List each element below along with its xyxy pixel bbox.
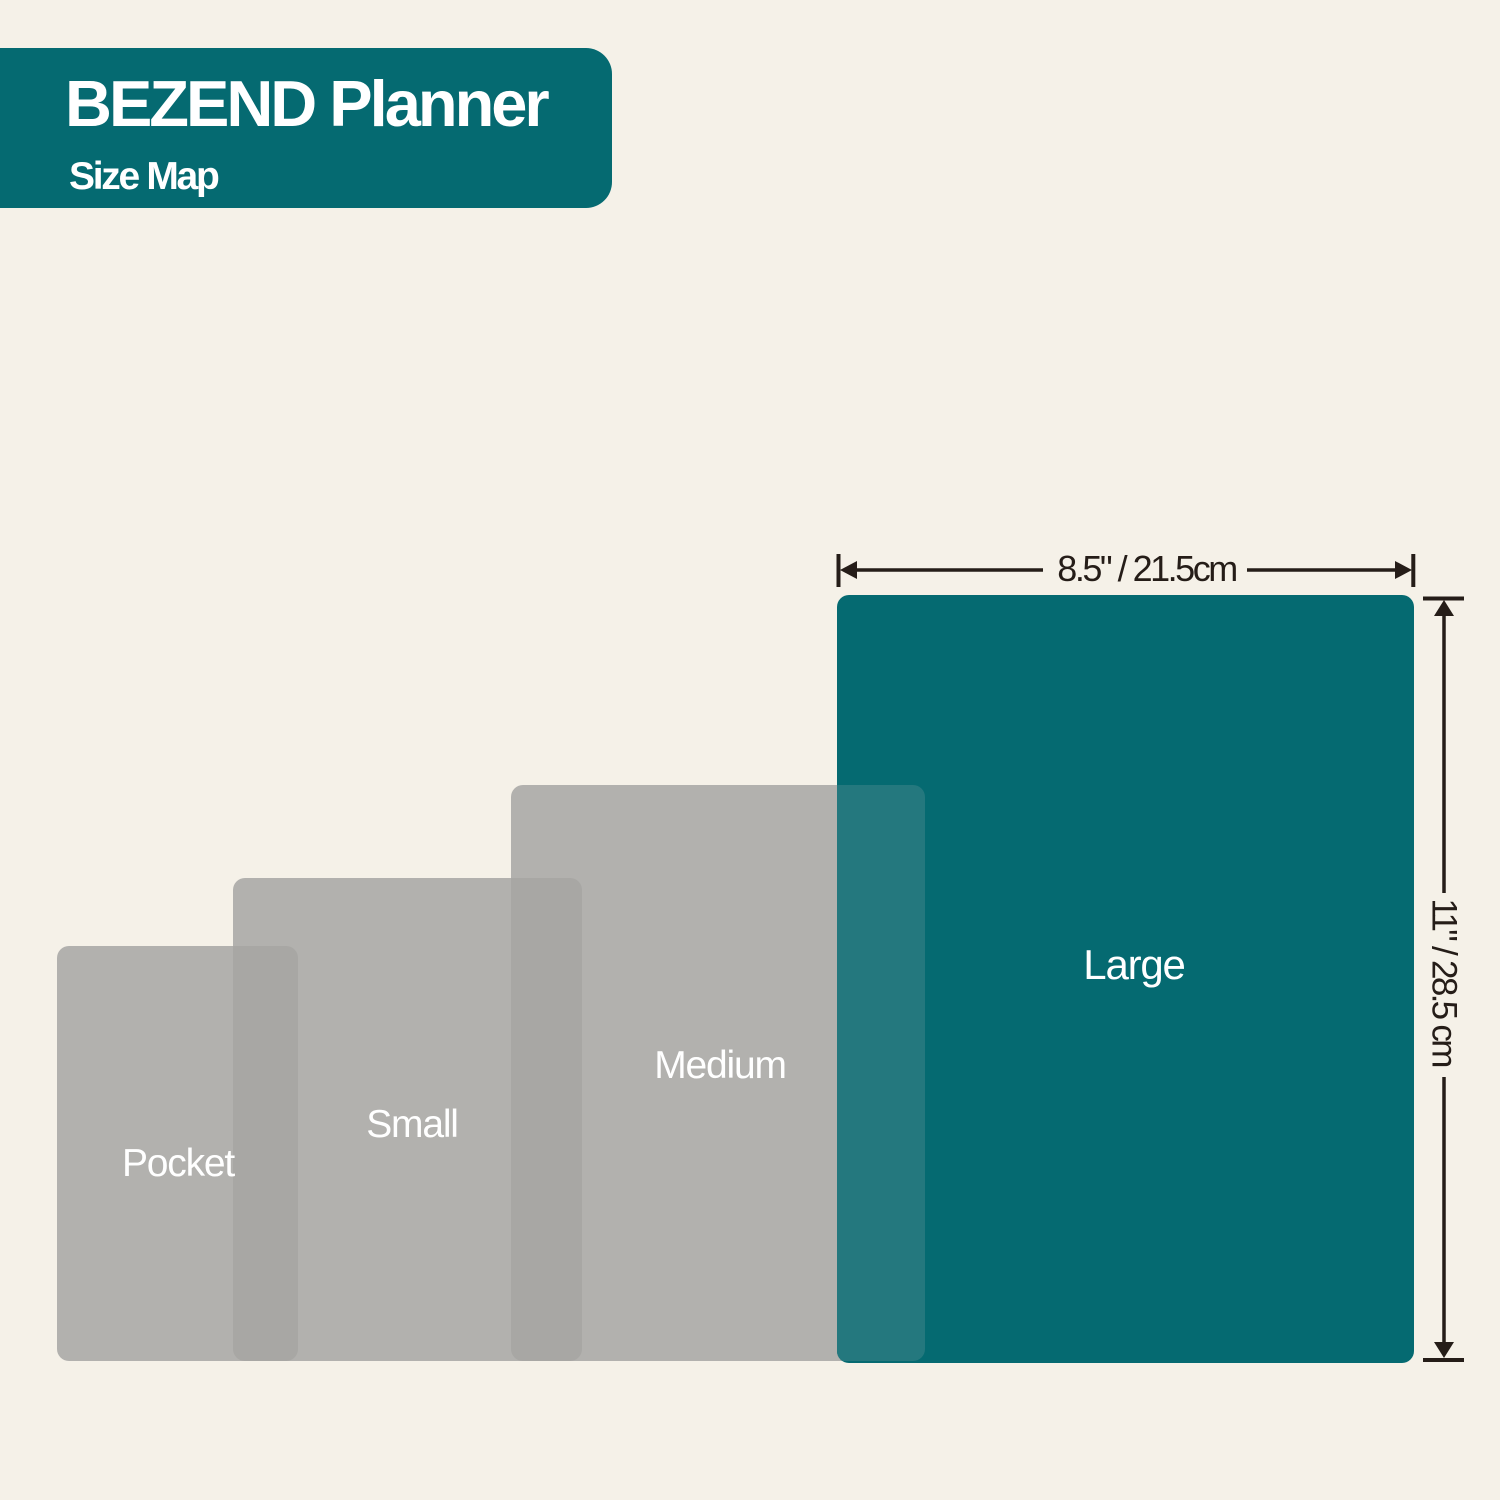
svg-text:8.5" / 21.5cm: 8.5" / 21.5cm xyxy=(1057,548,1236,589)
svg-text:Small: Small xyxy=(366,1103,458,1146)
svg-text:Large: Large xyxy=(1083,941,1184,988)
svg-text:Medium: Medium xyxy=(654,1044,786,1087)
svg-text:BEZEND Planner: BEZEND Planner xyxy=(65,67,549,140)
svg-text:Size Map: Size Map xyxy=(69,155,219,198)
svg-text:11" / 28.5 cm: 11" / 28.5 cm xyxy=(1425,898,1464,1066)
svg-text:Pocket: Pocket xyxy=(122,1142,235,1185)
